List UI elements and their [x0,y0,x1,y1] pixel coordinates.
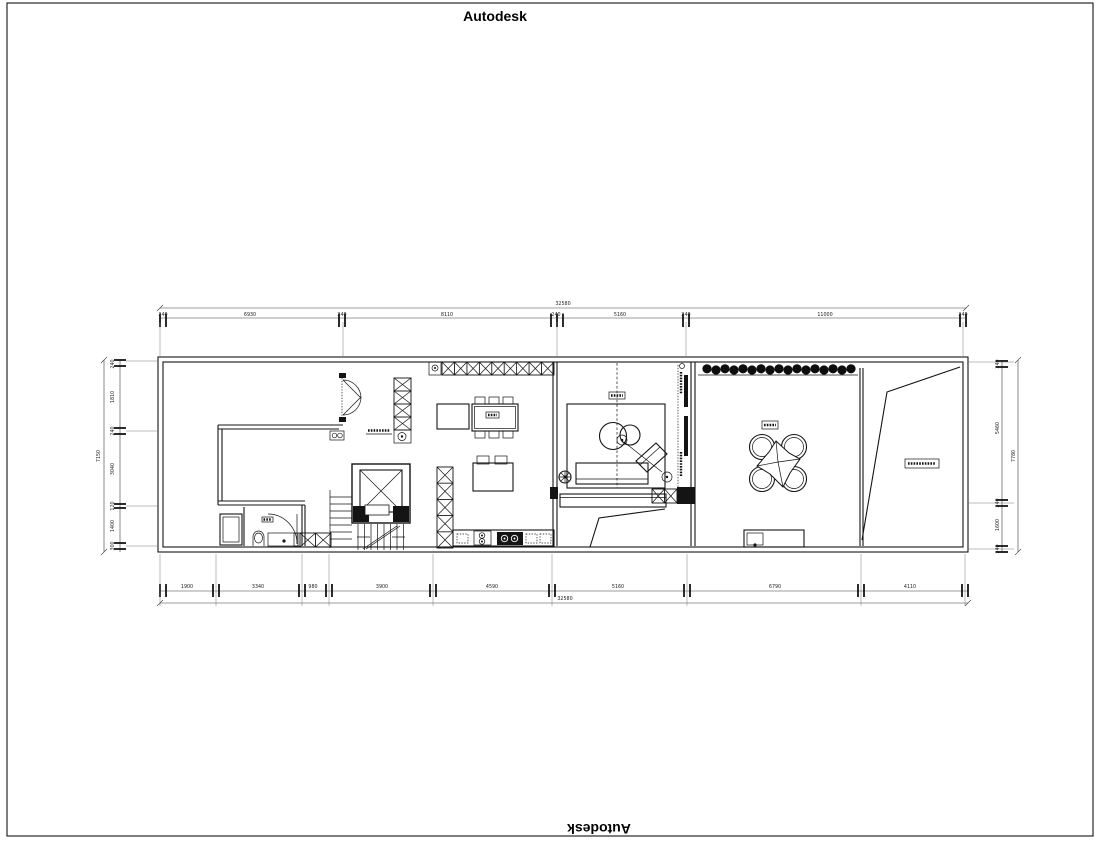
dim-top-1: 6930 [244,312,256,318]
staircase [294,490,405,550]
dim-left-5: 1400 [110,520,116,532]
dim-top-3: 8110 [441,312,453,318]
plot-page: Autodesk Autodesk [0,0,1100,845]
dim-left-total: 7150 [96,450,102,462]
equipment-unit [744,530,804,547]
dim-top-total: 32580 [555,301,570,307]
daybed [576,463,648,484]
dim-top-2: 240 [337,312,346,318]
label-box [486,412,499,418]
dim-top-0: 240 [158,312,167,318]
tall-cabinet-column [366,430,411,443]
dim-top-5: 5160 [614,312,626,318]
floorplan-canvas: Autodesk Autodesk [0,0,1100,845]
dim-top-4: 240 [551,312,560,318]
dining-area [437,397,518,491]
kitchen-island [437,404,469,429]
dim-left-4: 120 [110,501,116,510]
dim-bot-5: 5160 [612,584,624,590]
dim-right-2: 240 [995,498,1001,507]
dim-left-2: 240 [110,426,116,435]
dim-bot-3: 3900 [376,584,388,590]
dining-table [472,404,518,431]
dim-left-1: 1810 [110,391,116,403]
dim-bot-7: 4110 [904,584,916,590]
dim-top-8: 240 [958,312,967,318]
bathroom [220,514,298,546]
dim-bot-0: 1900 [181,584,193,590]
platform [567,404,665,488]
lounge-room [698,364,960,547]
planter-row [702,364,855,374]
entry-doors [330,373,361,440]
clover-seat [750,435,807,492]
dim-top-7: 11000 [817,312,832,318]
dim-left-6: 300 [110,541,116,550]
brand-stamp-top: Autodesk [463,8,527,24]
dim-right-4: 240 [995,544,1001,553]
dim-right-0: 240 [995,359,1001,368]
dim-bot-1: 3340 [252,584,264,590]
low-cabinet [560,494,666,507]
tub-circle [600,423,627,450]
terrace-slope [862,367,960,540]
dim-bot-4: 4590 [486,584,498,590]
bedroom-spa [559,363,695,547]
side-table [473,463,513,491]
dim-bot-6: 6790 [769,584,781,590]
dim-top-6: 240 [681,312,690,318]
dim-left-0: 240 [110,359,116,368]
dim-bottom-total: 32580 [557,596,572,602]
dim-left-3: 3040 [110,463,116,475]
ramp-lines [590,509,665,547]
floorplan-walls [158,357,968,552]
lounger [636,443,667,472]
dim-right-1: 5460 [995,422,1001,434]
dim-right-total: 7780 [1011,450,1017,462]
kitchen [429,362,554,546]
dim-right-3: 1600 [995,519,1001,531]
page-border [7,3,1093,836]
dim-bot-2: 980 [308,584,317,590]
brand-stamp-bottom: Autodesk [567,821,631,837]
elevator [352,464,410,523]
dimensions: 32580 240 6930 240 8110 240 5160 240 110… [96,301,1021,606]
